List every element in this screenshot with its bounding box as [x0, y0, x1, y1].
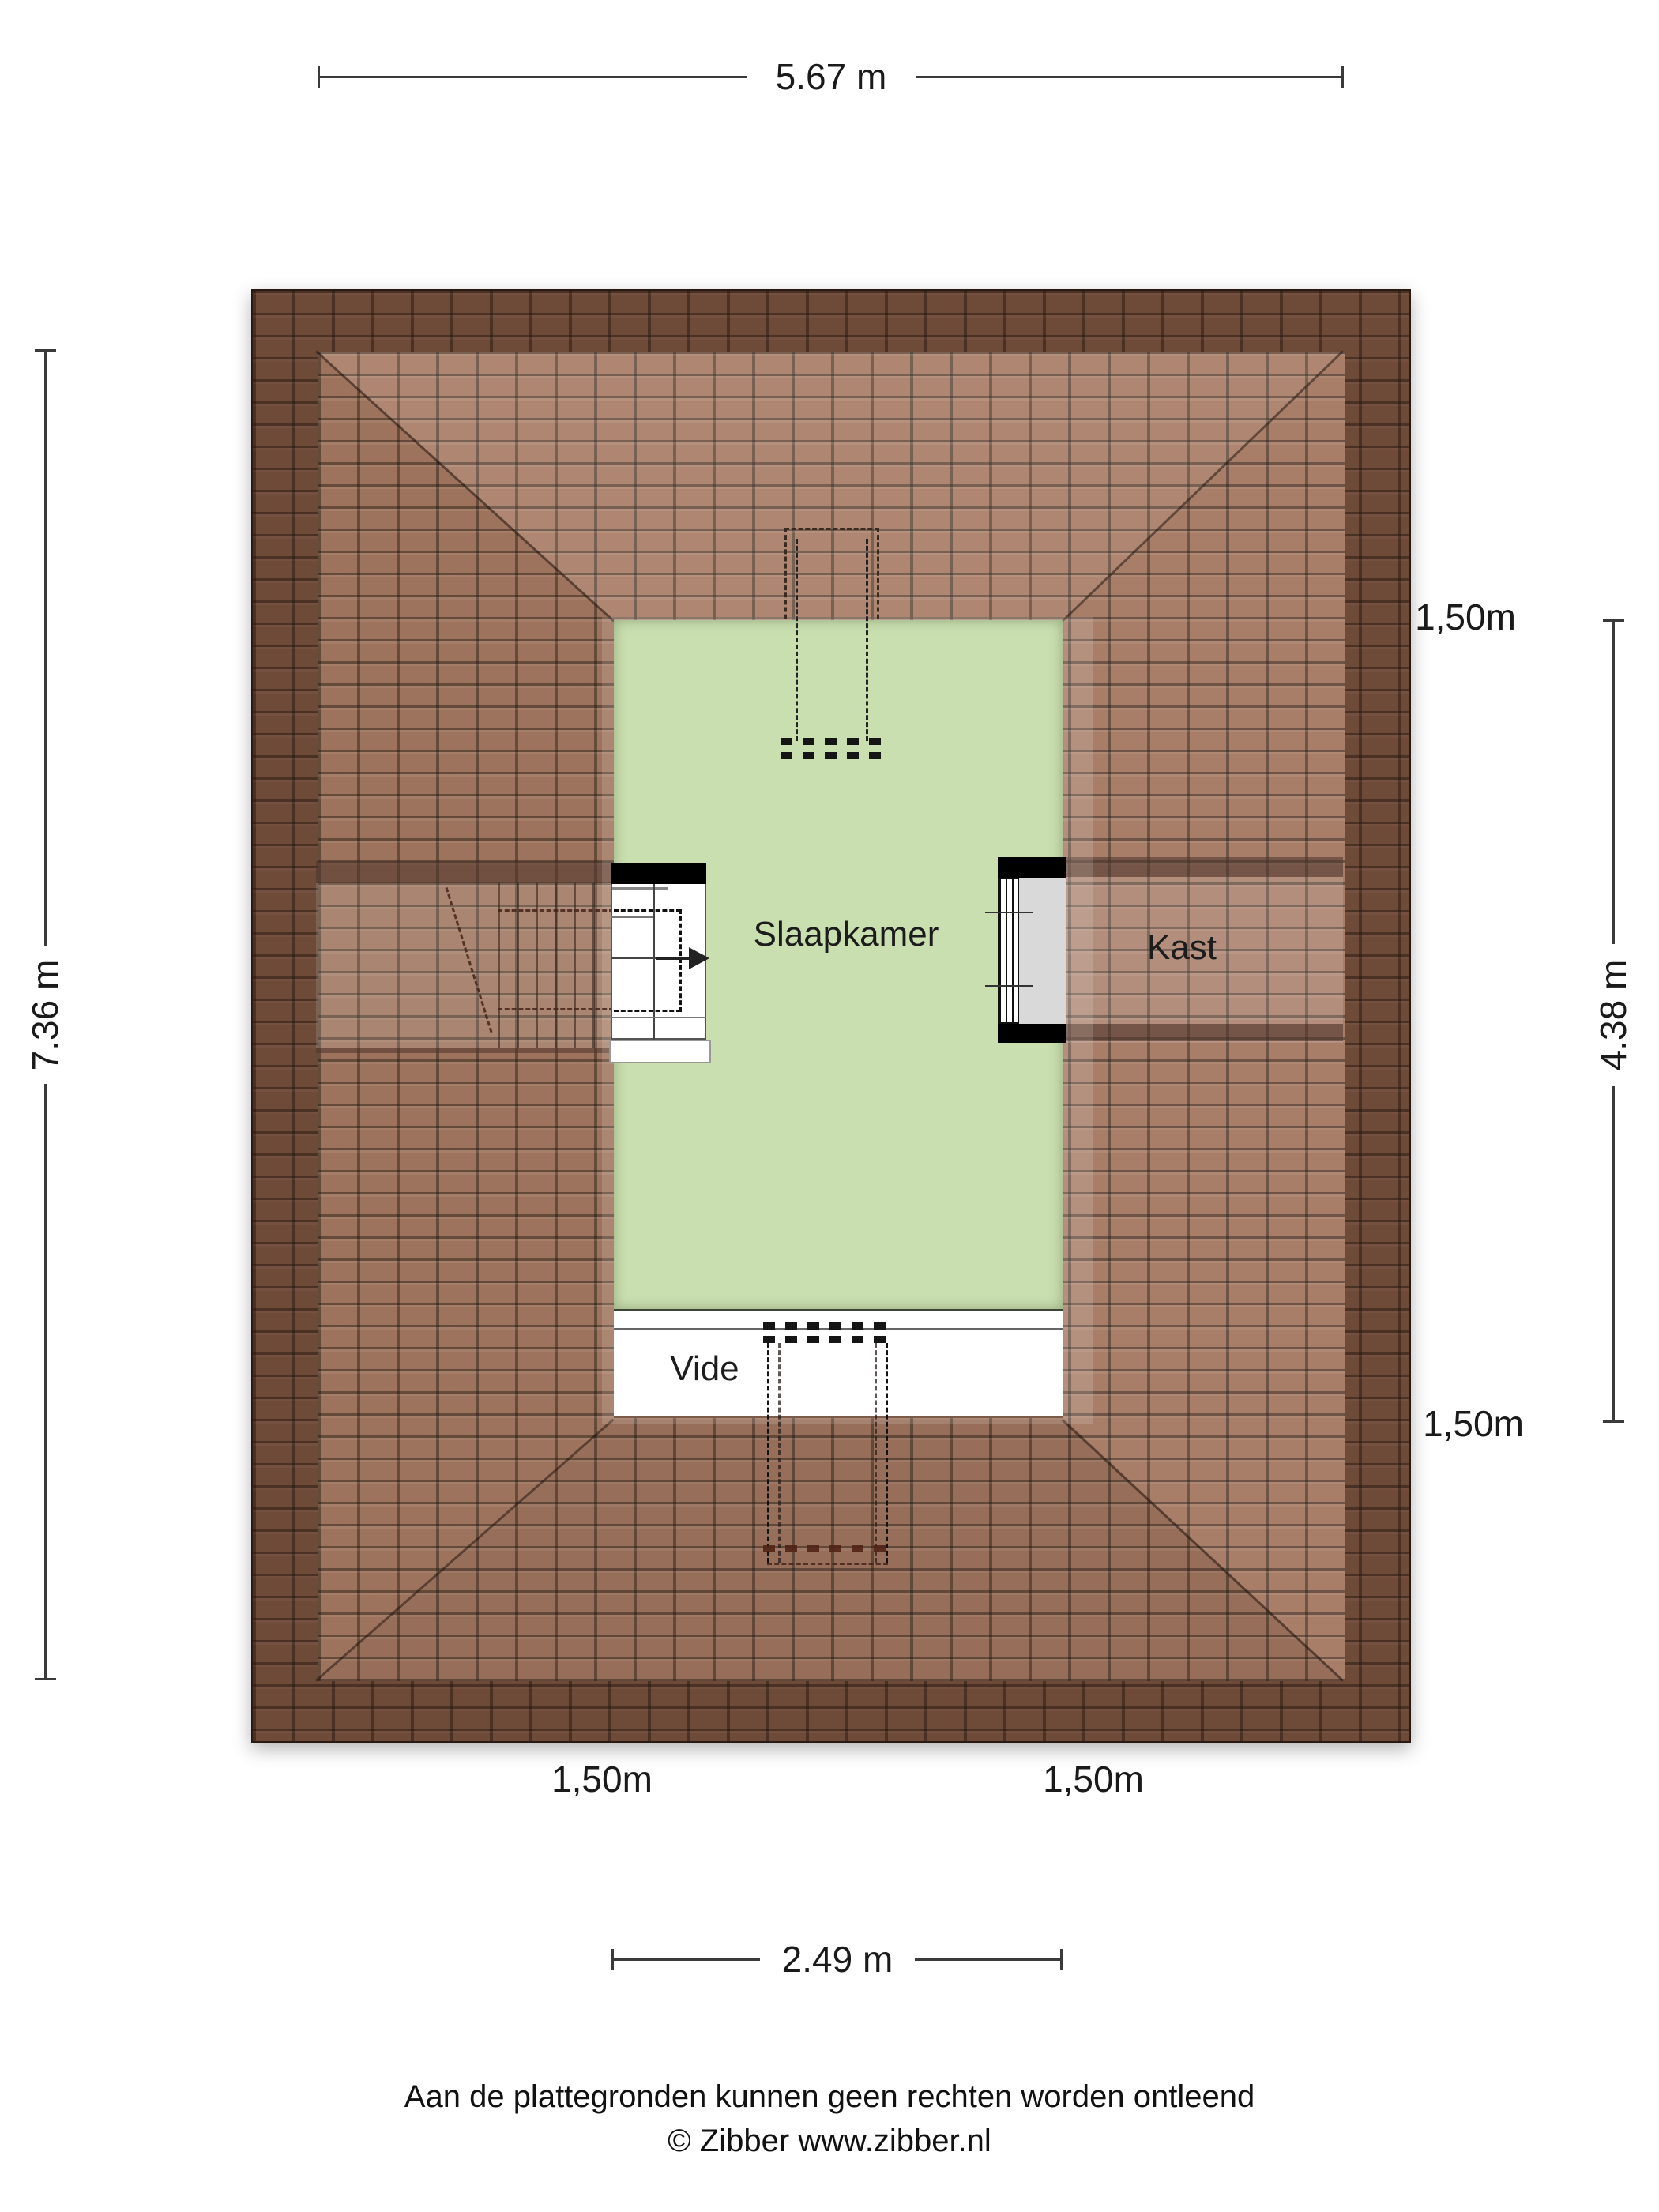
vide-dashed-right-outer [886, 1343, 888, 1563]
dim-top-cap-right [1341, 66, 1344, 88]
walkline-roof-upper [498, 909, 614, 912]
dim-right-line-top [1612, 620, 1615, 944]
dim-bottom-cap-right [1060, 1949, 1063, 1970]
label-vide: Vide [670, 1349, 739, 1389]
dormer-band-left-bottom-edge [316, 1048, 614, 1053]
stair-arrow-head-icon [689, 947, 709, 969]
skylight-dash-row-2 [781, 752, 883, 759]
kast-wall-bottom [998, 1024, 1066, 1043]
stair-landing [609, 1040, 711, 1063]
contour-label-bottom-left: 1,50m [551, 1758, 653, 1800]
vide-dash-row-2 [763, 1336, 890, 1343]
kast-floor [1019, 878, 1066, 1024]
dim-bottom-value: 2.49 m [782, 1938, 893, 1981]
walkline-roof-lower [498, 1008, 614, 1010]
vide-dashed-left-inner [778, 1343, 781, 1563]
dormer-band-right-bottom-edge [1063, 1024, 1343, 1041]
stair-tread-3 [611, 1017, 706, 1018]
dim-bottom-line-left [612, 1958, 760, 1961]
footer-copyright: © Zibber www.zibber.nl [0, 2124, 1659, 2159]
dim-left-line-top [44, 350, 47, 946]
dim-bottom-line-right [915, 1958, 1062, 1961]
vide-dashed-right-inner [875, 1343, 877, 1563]
dim-bottom-cap-left [611, 1949, 614, 1970]
dim-right-cap-bottom [1603, 1420, 1624, 1423]
window-tick-bottom [985, 985, 1033, 987]
dim-right-value: 4.38 m [1592, 960, 1635, 1071]
dim-top-line-left [318, 76, 747, 78]
stair-tread-1 [611, 916, 653, 918]
dim-left-value: 7.36 m [24, 960, 66, 1071]
dim-right-line-bottom [1612, 1086, 1615, 1422]
skylight-dash-row-1 [781, 738, 883, 745]
dim-top-cap-left [318, 66, 320, 88]
vide-dashed-left-outer [767, 1343, 769, 1563]
contour-label-bottom-right: 1,50m [1043, 1758, 1144, 1800]
dim-right-cap-top [1603, 619, 1624, 622]
dim-top-line-right [916, 76, 1343, 78]
dormer-band-left-top-edge [316, 861, 614, 883]
vide-dash-row-bottom-1 [763, 1545, 890, 1552]
label-slaapkamer: Slaapkamer [754, 915, 939, 954]
dim-left-line-bottom [44, 1084, 47, 1680]
skylight-dashed-outline-inner [796, 539, 868, 741]
stair-edge-gray [612, 887, 668, 890]
kast-wall-top [998, 857, 1066, 878]
stair-walkline-bottom [614, 1010, 681, 1012]
dim-top-value: 5.67 m [776, 55, 887, 98]
dormer-band-right-top-edge [1063, 857, 1343, 877]
dim-left-cap-bottom [35, 1678, 56, 1680]
stair-walkline-top [614, 909, 681, 912]
stair-treads-under-roof [498, 883, 614, 1048]
stair-walkline-right [679, 909, 682, 1012]
window-icon [998, 878, 1019, 1024]
vide-dash-row-bottom-2 [767, 1563, 888, 1565]
footer-disclaimer: Aan de plattegronden kunnen geen rechten… [0, 2079, 1659, 2115]
label-kast: Kast [1147, 928, 1217, 968]
stair-wall-top [611, 863, 706, 884]
contour-label-right-top: 1,50m [1415, 596, 1516, 638]
floorplan-canvas: { "rooms": { "slaapkamer": "Slaapkamer",… [0, 0, 1659, 2212]
vide-dash-row-1 [763, 1322, 890, 1330]
dim-left-cap-top [35, 349, 56, 352]
contour-label-right-bottom: 1,50m [1423, 1402, 1524, 1445]
window-tick-top [985, 912, 1033, 913]
